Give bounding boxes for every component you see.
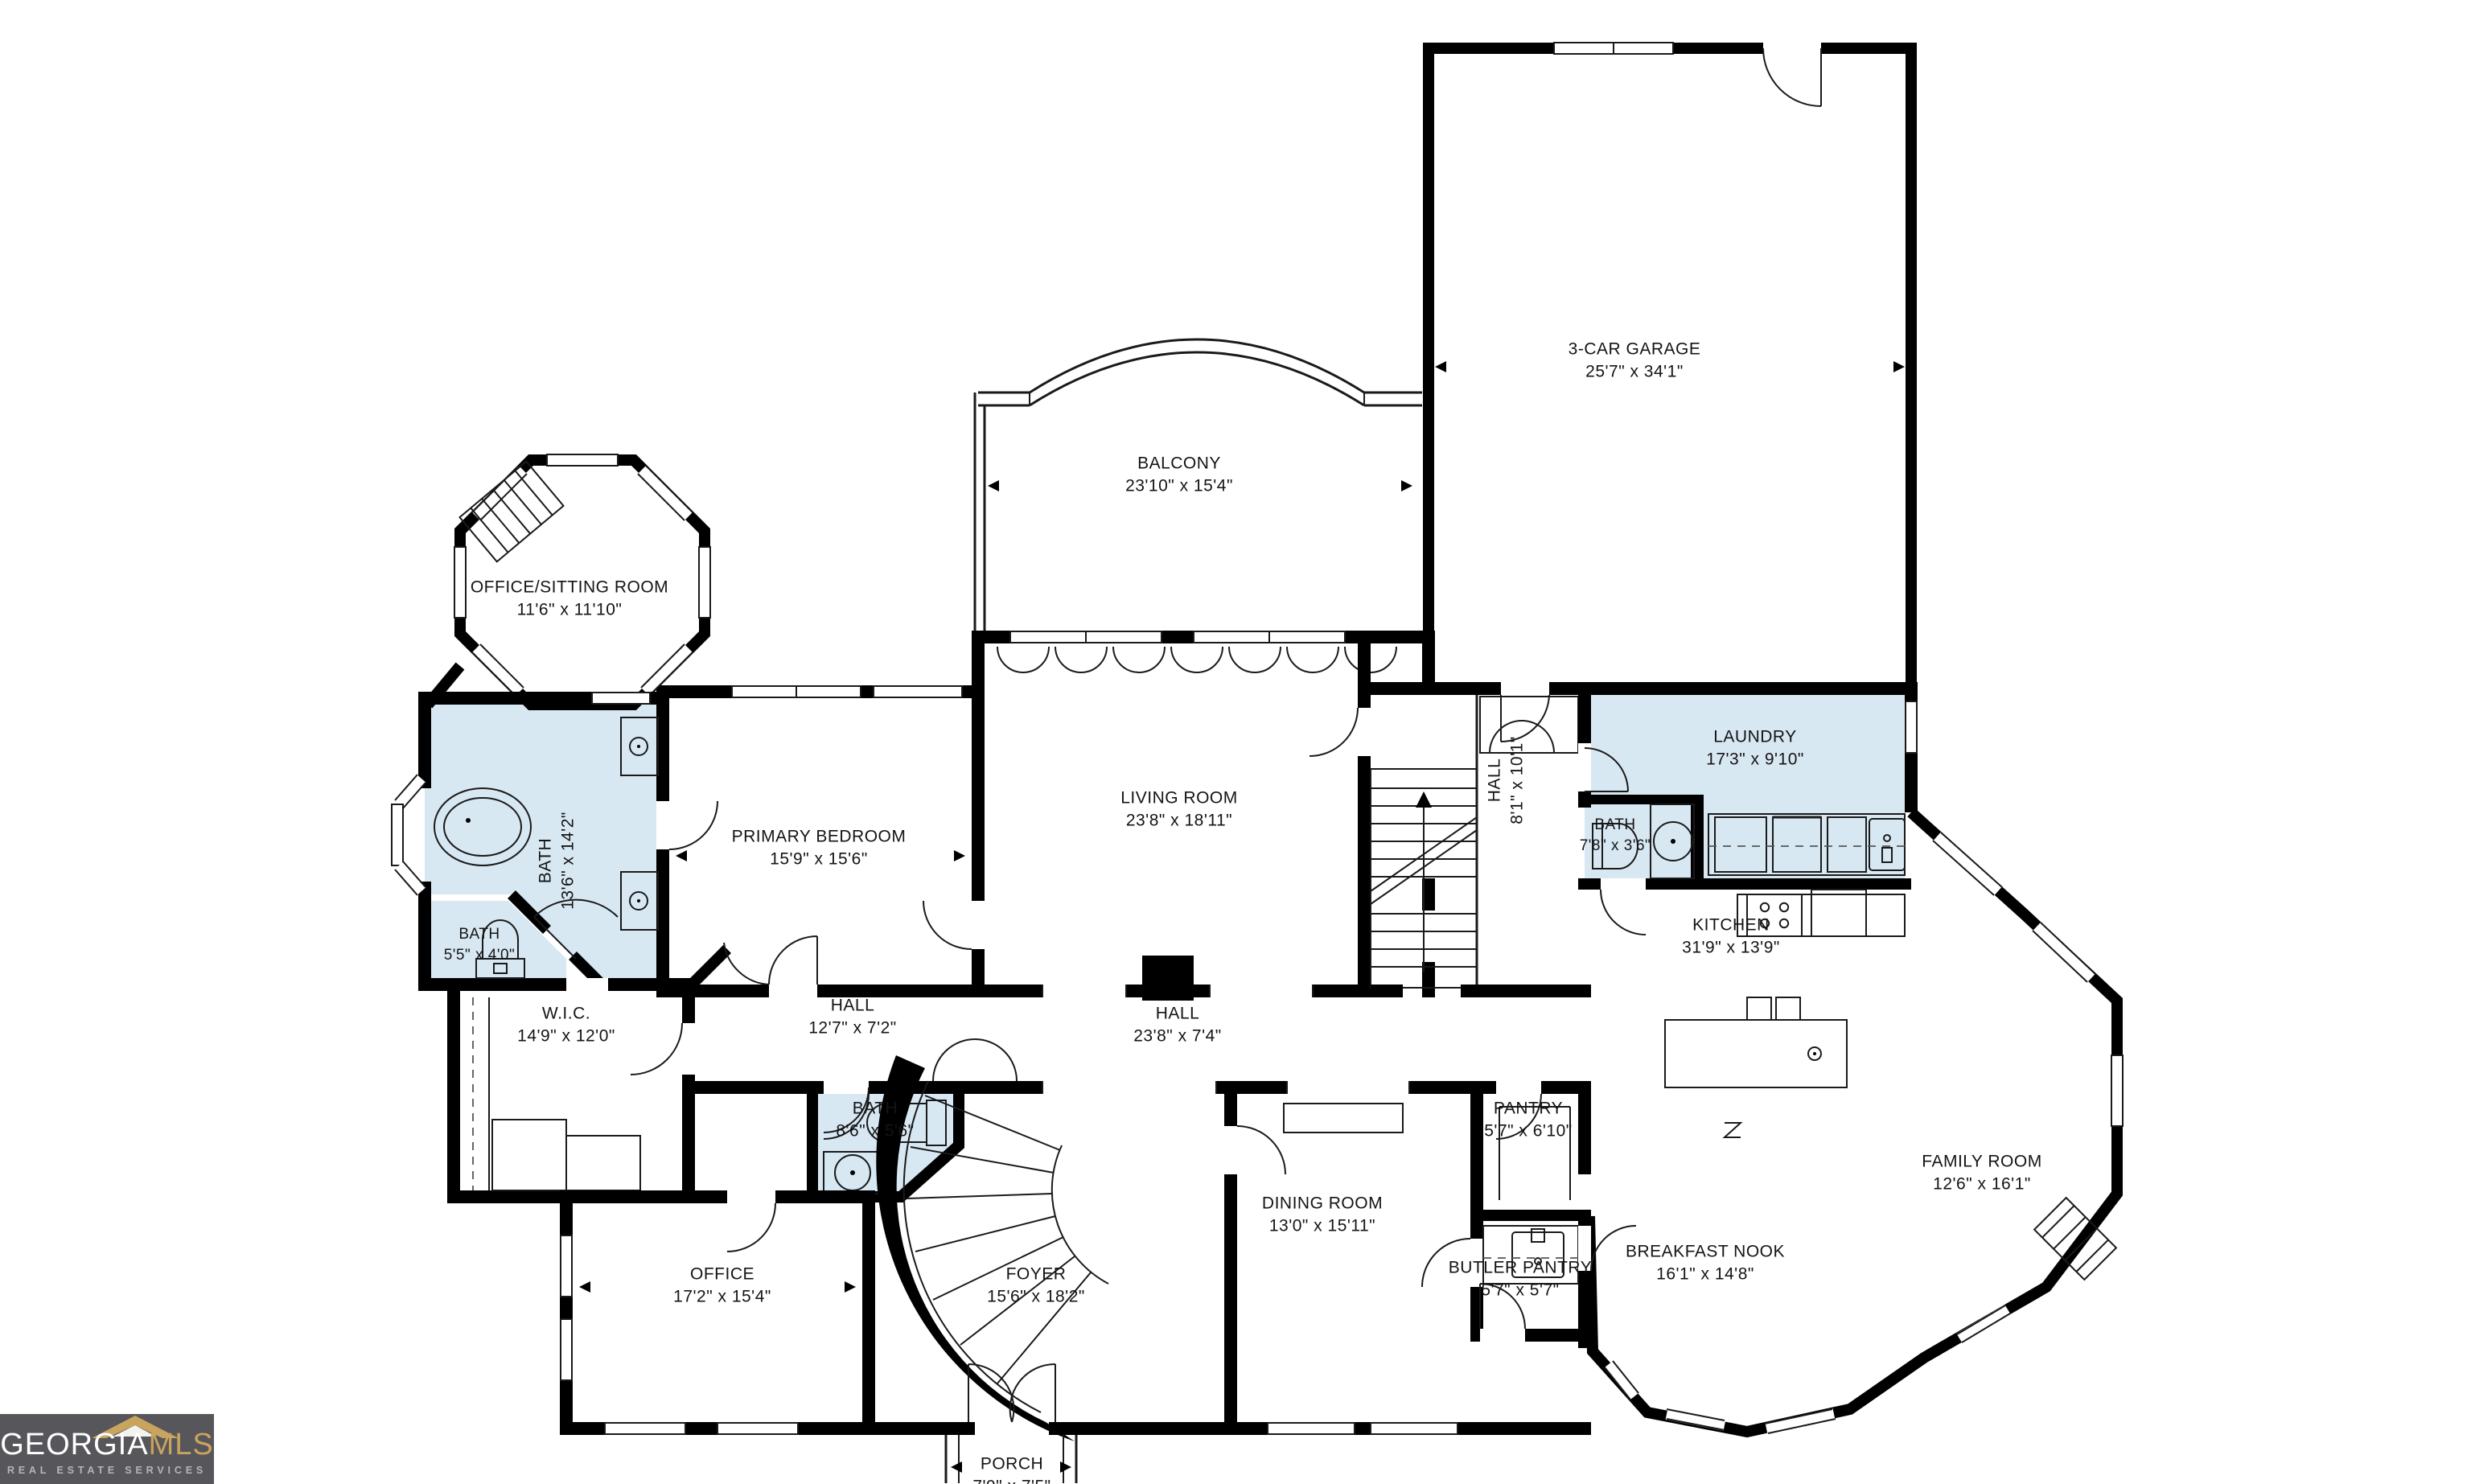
room-label-primary-bedroom: PRIMARY BEDROOM 15'9" x 15'6" [732, 827, 907, 871]
room-label-hall-stairs: HALL 8'1" x 10'1" [1485, 736, 1529, 824]
room-label-dining: DINING ROOM 13'0" x 15'11" [1262, 1194, 1383, 1238]
room-label-primary-bath: BATH 13'6" x 14'2" [536, 812, 580, 910]
room-label-kitchen: KITCHEN 31'9" x 13'9" [1682, 915, 1780, 960]
room-label-porch: PORCH 7'9" x 7'5" [972, 1454, 1050, 1484]
floorplan-drawing [0, 0, 2471, 1484]
logo-tagline: REAL ESTATE SERVICES [0, 1465, 214, 1476]
room-label-wic: W.I.C. 14'9" x 12'0" [517, 1004, 615, 1048]
family-room-walls [1589, 812, 2123, 1432]
room-label-breakfast: BREAKFAST NOOK 16'1" x 14'8" [1626, 1242, 1785, 1286]
room-label-office: OFFICE 17'2" x 15'4" [673, 1264, 771, 1309]
room-label-hall-bedroom: HALL 12'7" x 7'2" [808, 996, 897, 1040]
office-walls [560, 1190, 875, 1435]
room-label-hall-main: HALL 23'8" x 7'4" [1133, 1004, 1222, 1048]
floorplan-page: OFFICE/SITTING ROOM 11'6" x 11'10" BALCO… [0, 0, 2471, 1484]
room-label-pantry: PANTRY 5'7" x 6'10" [1484, 1099, 1573, 1143]
room-label-bath-hall: BATH 8'6" x 5'6" [836, 1099, 914, 1143]
room-label-garage: 3-CAR GARAGE 25'7" x 34'1" [1569, 339, 1701, 384]
georgia-mls-logo: GEORGIAMLS REAL ESTATE SERVICES [0, 1413, 214, 1484]
room-label-bath-powder: BATH 7'8" x 3'6" [1580, 816, 1651, 857]
stair-hall-walls [1364, 682, 1585, 753]
room-label-bath-small: BATH 5'5" x 4'0" [444, 926, 516, 966]
room-label-living-room: LIVING ROOM 23'8" x 18'11" [1120, 788, 1238, 832]
logo-wordmark: GEORGIAMLS [0, 1428, 214, 1463]
room-label-butler: BUTLER PANTRY 5'7" x 5'7" [1449, 1258, 1592, 1302]
room-label-laundry: LAUNDRY 17'3" x 9'10" [1706, 727, 1804, 771]
room-label-office-sitting: OFFICE/SITTING ROOM 11'6" x 11'10" [471, 578, 668, 622]
room-label-balcony: BALCONY 23'10" x 15'4" [1125, 454, 1233, 498]
room-label-family: FAMILY ROOM 12'6" x 16'1" [1922, 1152, 2041, 1196]
room-label-foyer: FOYER 15'6" x 18'2" [987, 1264, 1085, 1309]
